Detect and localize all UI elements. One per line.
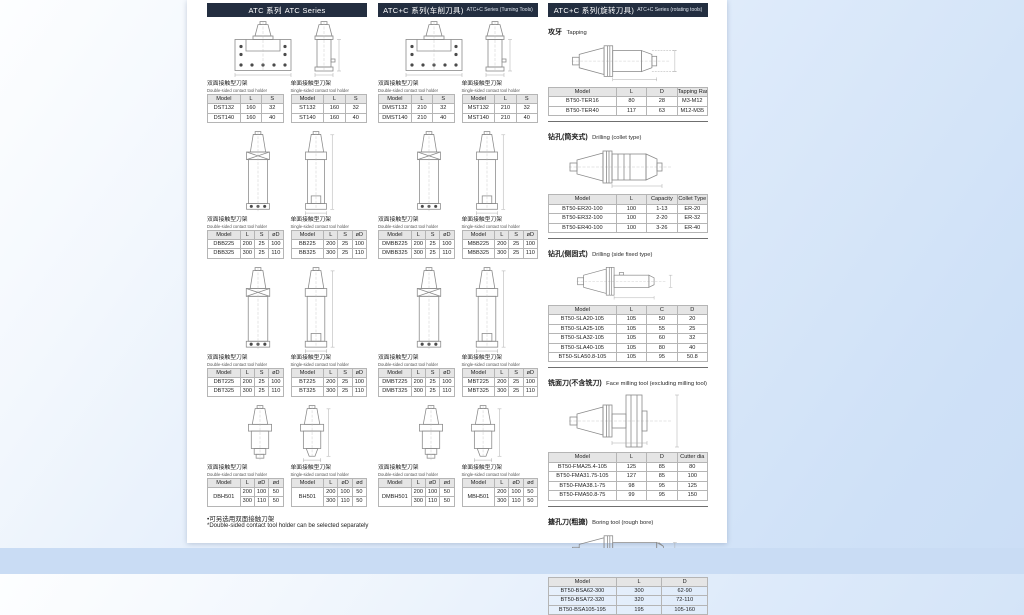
col-header: L bbox=[411, 478, 425, 487]
col-header: Model bbox=[549, 453, 617, 462]
col-header: S bbox=[262, 94, 283, 103]
table-label-en: Double-sided contact tool holder bbox=[207, 362, 284, 367]
cell: 80 bbox=[647, 343, 677, 352]
section-title-en: Drilling (side fixed type) bbox=[592, 252, 652, 258]
table-row: MBH50120010050 bbox=[462, 487, 538, 496]
double-sided-block: 双面接触型刀架 Double-sided contact tool holder… bbox=[378, 355, 455, 397]
col-header: L bbox=[240, 368, 254, 377]
table-pair: 双面接触型刀架 Double-sided contact tool holder… bbox=[207, 355, 367, 397]
section-divider bbox=[548, 121, 708, 122]
col-header: L bbox=[616, 453, 646, 462]
col-header: D bbox=[662, 577, 708, 586]
table-row: DMBT22520025100 bbox=[379, 378, 455, 387]
cell: 60 bbox=[647, 334, 677, 343]
col-header: S bbox=[516, 94, 537, 103]
drawings-row bbox=[548, 41, 708, 85]
drawings-row bbox=[548, 146, 708, 192]
cell: BT50-ER20-100 bbox=[549, 204, 617, 213]
cell: 110 bbox=[523, 387, 537, 396]
cell: 200 bbox=[495, 240, 509, 249]
col-header: S bbox=[509, 230, 523, 239]
header-row: ModelLSøD bbox=[379, 230, 455, 239]
cell: BT50-FMA38.1-75 bbox=[549, 481, 617, 490]
drilling-collet-tool-drawing bbox=[565, 146, 691, 192]
cell: 160 bbox=[240, 113, 261, 122]
single-sided-block: 单面接触型刀架 Single-sided contact tool holder… bbox=[291, 465, 368, 507]
spec-table: ModelLSøDBB22520025100BB32530025110 bbox=[291, 230, 368, 259]
table-pair: 双面接触型刀架 Double-sided contact tool holder… bbox=[378, 465, 538, 507]
col-header: L bbox=[495, 230, 509, 239]
col-header: L bbox=[411, 230, 425, 239]
table-row: DBT32530025110 bbox=[208, 387, 284, 396]
tool-holder-side-drawing bbox=[465, 267, 509, 353]
cell: 2-20 bbox=[647, 214, 677, 223]
col-header: L bbox=[324, 230, 338, 239]
cell: 110 bbox=[440, 249, 454, 258]
section-divider bbox=[548, 367, 708, 368]
table-row: BH50120010050 bbox=[291, 487, 367, 496]
cell: 300 bbox=[240, 497, 254, 506]
col-header: Model bbox=[462, 230, 495, 239]
col-header: L bbox=[411, 94, 432, 103]
drawings-row bbox=[378, 405, 538, 463]
cell: 50 bbox=[523, 487, 537, 496]
cell: ER-20 bbox=[677, 204, 707, 213]
drawings-row bbox=[378, 21, 538, 79]
table-label-cn: 双面接触型刀架 bbox=[378, 465, 455, 472]
cell: DMST140 bbox=[379, 113, 412, 122]
single-sided-block: 单面接触型刀架 Single-sided contact tool holder… bbox=[291, 217, 368, 259]
cell: BT50-BSA105-195 bbox=[549, 605, 617, 614]
cell: 200 bbox=[324, 378, 338, 387]
col-header: ød bbox=[440, 478, 454, 487]
table-row: MST13221032 bbox=[462, 104, 538, 113]
cell: BB325 bbox=[291, 249, 324, 258]
drawings-row bbox=[378, 267, 538, 353]
cell: MBH501 bbox=[462, 487, 495, 506]
cell: 210 bbox=[411, 113, 432, 122]
column-atc-series: ATC 系列 ATC Series 双面接触型刀架 Double-sided c… bbox=[207, 3, 367, 529]
col-header: L bbox=[240, 230, 254, 239]
table-label-en: Double-sided contact tool holder bbox=[378, 224, 455, 229]
header-row: ModelLCD bbox=[549, 305, 708, 314]
header-title-en: ATC+C Series (rotating tools) bbox=[637, 7, 702, 13]
cell: 80 bbox=[616, 97, 646, 106]
table-row: ST14016040 bbox=[291, 113, 367, 122]
cell: 117 bbox=[616, 106, 646, 115]
col-header: Model bbox=[379, 230, 412, 239]
cell: 50 bbox=[269, 487, 283, 496]
cell: 200 bbox=[411, 240, 425, 249]
table-row: MBT22520025100 bbox=[462, 378, 538, 387]
col-header: Capacity bbox=[647, 195, 677, 204]
cell: 125 bbox=[616, 462, 646, 471]
cell: 105 bbox=[616, 334, 646, 343]
cell: BB225 bbox=[291, 240, 324, 249]
header-row: ModelLøDød bbox=[291, 478, 367, 487]
table-label-en: Single-sided contact tool holder bbox=[291, 472, 368, 477]
cell: 100 bbox=[677, 472, 707, 481]
col-header: øD bbox=[269, 368, 283, 377]
table-row: BT50-ER40-1001003-26ER-40 bbox=[549, 223, 708, 232]
cell: 200 bbox=[240, 378, 254, 387]
table-row: BT50-ER20-1001001-13ER-20 bbox=[549, 204, 708, 213]
cell: 100 bbox=[616, 223, 646, 232]
cell: 200 bbox=[411, 487, 425, 496]
table-row: BB22520025100 bbox=[291, 240, 367, 249]
table-row: BT50-BSA62-30030062-90 bbox=[549, 587, 708, 596]
section-title-face-milling: 铣面刀(不含铣刀) Face milling tool (excluding m… bbox=[548, 372, 708, 390]
col-header: D bbox=[647, 453, 677, 462]
cell: 200 bbox=[324, 487, 338, 496]
cell: 25 bbox=[338, 249, 352, 258]
col-header: S bbox=[254, 368, 268, 377]
table-label-en: Single-sided contact tool holder bbox=[291, 88, 368, 93]
col-header: øD bbox=[352, 230, 366, 239]
col-header: Model bbox=[208, 230, 241, 239]
col-header: ød bbox=[269, 478, 283, 487]
tapping-tool-drawing bbox=[565, 41, 691, 85]
header-row: ModelLøDød bbox=[208, 478, 284, 487]
cell: BH501 bbox=[291, 487, 324, 506]
cell: ST140 bbox=[291, 113, 324, 122]
cell: 300 bbox=[324, 497, 338, 506]
cell: 32 bbox=[516, 104, 537, 113]
table-label-en: Single-sided contact tool holder bbox=[462, 362, 539, 367]
table-row: DMBT32530025110 bbox=[379, 387, 455, 396]
header-row: ModelLS bbox=[291, 94, 367, 103]
spec-table: ModelLøDødDBH5012001005030011050 bbox=[207, 478, 284, 507]
table-row: DMST13221032 bbox=[379, 104, 455, 113]
header-row: ModelLS bbox=[379, 94, 455, 103]
cell: 195 bbox=[616, 605, 662, 614]
table-label-en: Single-sided contact tool holder bbox=[291, 224, 368, 229]
cell: 40 bbox=[345, 113, 366, 122]
spec-table: ModelLSDMST13221032DMST14021040 bbox=[378, 94, 455, 123]
tool-holder-side-drawing bbox=[294, 131, 338, 215]
header-row: ModelLSøD bbox=[291, 368, 367, 377]
tool-holder-side-drawing bbox=[294, 405, 334, 463]
cell: 200 bbox=[495, 378, 509, 387]
cell: MBB325 bbox=[462, 249, 495, 258]
cell: 25 bbox=[425, 378, 439, 387]
col-header: ød bbox=[523, 478, 537, 487]
spec-table: ModelLSøDBT22520025100BT32530025110 bbox=[291, 368, 368, 397]
header-row: ModelLSøD bbox=[379, 368, 455, 377]
cell: 25 bbox=[677, 324, 707, 333]
section-header-atc: ATC 系列 ATC Series bbox=[207, 3, 367, 17]
spec-table: ModelLSøDDMBB22520025100DMBB32530025110 bbox=[378, 230, 455, 259]
cell: 160 bbox=[240, 104, 261, 113]
col-header: C bbox=[647, 305, 677, 314]
spec-table: ModelLSøDDBB22520025100DBB32530025110 bbox=[207, 230, 284, 259]
table-row: DMBB32530025110 bbox=[379, 249, 455, 258]
table-row: MBB32530025110 bbox=[462, 249, 538, 258]
cell: DMBT325 bbox=[379, 387, 412, 396]
header-row: ModelLDTapping Range bbox=[549, 88, 708, 97]
col-header: ød bbox=[352, 478, 366, 487]
cell: 50 bbox=[352, 497, 366, 506]
cell: 100 bbox=[440, 378, 454, 387]
cell: MST140 bbox=[462, 113, 495, 122]
drawings-row bbox=[548, 263, 708, 303]
table-row: BT50-FMA25.4-1051258580 bbox=[549, 462, 708, 471]
col-header: øD bbox=[269, 230, 283, 239]
cell: 105 bbox=[616, 343, 646, 352]
cell: 300 bbox=[495, 387, 509, 396]
cell: DBT325 bbox=[208, 387, 241, 396]
table-row: BT50-TER4011763M12-M35 bbox=[549, 106, 708, 115]
drawings-row bbox=[207, 267, 367, 353]
cell: 110 bbox=[338, 497, 352, 506]
cell: 320 bbox=[616, 596, 662, 605]
cell: 105 bbox=[616, 315, 646, 324]
section-title-cn: 搪孔刀(粗搪) bbox=[548, 519, 588, 526]
cell: DBB225 bbox=[208, 240, 241, 249]
cell: 200 bbox=[495, 487, 509, 496]
cell: 25 bbox=[509, 249, 523, 258]
section-divider bbox=[548, 506, 708, 507]
col-header: Model bbox=[549, 305, 617, 314]
col-header: Model bbox=[379, 94, 412, 103]
spec-table: ModelLCDBT50-SLA20-1051055020BT50-SLA25-… bbox=[548, 305, 708, 363]
cell: 25 bbox=[254, 240, 268, 249]
col-header: Model bbox=[379, 478, 412, 487]
cell: 300 bbox=[411, 497, 425, 506]
cell: DMBT225 bbox=[379, 378, 412, 387]
col-header: S bbox=[509, 368, 523, 377]
cell: 125 bbox=[677, 481, 707, 490]
section-title-drilling-collet: 钻孔(筒夹式) Drilling (collet type) bbox=[548, 126, 708, 144]
table-pair: 双面接触型刀架 Double-sided contact tool holder… bbox=[207, 81, 367, 123]
cell: 300 bbox=[324, 387, 338, 396]
section-title-cn: 钻孔(侧固式) bbox=[548, 251, 588, 258]
table-pair: 双面接触型刀架 Double-sided contact tool holder… bbox=[207, 465, 367, 507]
header-title-cn: ATC+C 系列(车削刀具) bbox=[383, 5, 464, 16]
cell: 200 bbox=[411, 378, 425, 387]
tool-holder-front-drawing bbox=[236, 267, 280, 353]
cell: 300 bbox=[495, 497, 509, 506]
tool-holder-front-drawing bbox=[407, 131, 451, 215]
spec-table: ModelLøDødMBH5012001005030011050 bbox=[462, 478, 539, 507]
col-header: S bbox=[254, 230, 268, 239]
table-row: DBH50120010050 bbox=[208, 487, 284, 496]
col-header: L bbox=[495, 478, 509, 487]
drawings-row bbox=[548, 392, 708, 450]
header-row: ModelLSøD bbox=[208, 368, 284, 377]
catalog-page: ATC 系列 ATC Series 双面接触型刀架 Double-sided c… bbox=[187, 0, 727, 543]
spec-table: ModelLSøDMBT22520025100MBT32530025110 bbox=[462, 368, 539, 397]
table-row: BT50-TER168028M3-M12 bbox=[549, 97, 708, 106]
cell: BT50-SLA20-105 bbox=[549, 315, 617, 324]
tool-holder-front-drawing bbox=[401, 21, 467, 79]
cell: BT50-TER40 bbox=[549, 106, 617, 115]
cell: 50 bbox=[440, 487, 454, 496]
table-row: DBB22520025100 bbox=[208, 240, 284, 249]
table-label-en: Single-sided contact tool holder bbox=[462, 472, 539, 477]
cell: 99 bbox=[616, 491, 646, 500]
tool-holder-side-drawing bbox=[481, 21, 515, 79]
tool-holder-front-drawing bbox=[240, 405, 280, 463]
cell: BT50-ER32-100 bbox=[549, 214, 617, 223]
cell: 200 bbox=[240, 240, 254, 249]
drilling-sidefixed-tool-drawing bbox=[569, 263, 687, 303]
col-header: Model bbox=[462, 368, 495, 377]
table-label-en: Single-sided contact tool holder bbox=[462, 88, 539, 93]
cell: 25 bbox=[509, 387, 523, 396]
col-header: Model bbox=[549, 577, 617, 586]
table-row: BT50-SLA50.8-1051059550.8 bbox=[549, 353, 708, 362]
cell: 85 bbox=[647, 472, 677, 481]
table-row: BB32530025110 bbox=[291, 249, 367, 258]
cell: 110 bbox=[523, 249, 537, 258]
table-pair: 双面接触型刀架 Double-sided contact tool holder… bbox=[378, 355, 538, 397]
table-row: BT50-BSA72-32032072-110 bbox=[549, 596, 708, 605]
cell: 110 bbox=[254, 497, 268, 506]
cell: 85 bbox=[647, 462, 677, 471]
cell: DMBB325 bbox=[379, 249, 412, 258]
section-title-boring: 搪孔刀(粗搪) Boring tool (rough bore) bbox=[548, 511, 708, 529]
cell: 200 bbox=[240, 487, 254, 496]
col-header: S bbox=[425, 368, 439, 377]
cell: 25 bbox=[338, 240, 352, 249]
cell: MST132 bbox=[462, 104, 495, 113]
spec-table: ModelLSDST13216032DST14016040 bbox=[207, 94, 284, 123]
cell: DMBB225 bbox=[379, 240, 412, 249]
col-header: Cutter dia bbox=[677, 453, 707, 462]
col-header: S bbox=[345, 94, 366, 103]
cell: 300 bbox=[324, 249, 338, 258]
cell: 110 bbox=[352, 249, 366, 258]
face-milling-tool-drawing bbox=[565, 392, 691, 450]
section-title-en: Drilling (collet type) bbox=[592, 135, 641, 141]
col-header: øD bbox=[509, 478, 523, 487]
cell: 105-160 bbox=[662, 605, 708, 614]
col-header: Model bbox=[291, 368, 324, 377]
table-label-en: Double-sided contact tool holder bbox=[207, 88, 284, 93]
cell: 100 bbox=[616, 214, 646, 223]
section-header-atc-c-rotating: ATC+C 系列(旋转刀具) ATC+C Series (rotating to… bbox=[548, 3, 708, 17]
cell: 110 bbox=[269, 249, 283, 258]
table-pair: 双面接触型刀架 Double-sided contact tool holder… bbox=[378, 81, 538, 123]
section-title-en: Tapping bbox=[566, 30, 586, 36]
header-row: ModelLSøD bbox=[291, 230, 367, 239]
cell: 50 bbox=[523, 497, 537, 506]
cell: 50.8 bbox=[677, 353, 707, 362]
cell: 100 bbox=[440, 240, 454, 249]
cell: 25 bbox=[425, 240, 439, 249]
spec-table: ModelLDBT50-BSA62-30030062-90BT50-BSA72-… bbox=[548, 577, 708, 615]
cell: BT50-SLA32-105 bbox=[549, 334, 617, 343]
double-sided-block: 双面接触型刀架 Double-sided contact tool holder… bbox=[207, 81, 284, 123]
cell: 95 bbox=[647, 353, 677, 362]
tool-holder-front-drawing bbox=[230, 21, 296, 79]
cell: 40 bbox=[677, 343, 707, 352]
section-title-cn: 攻牙 bbox=[548, 29, 562, 36]
table-label-cn: 单面接触型刀架 bbox=[291, 355, 368, 362]
spec-table: ModelLSøDDMBT22520025100DMBT32530025110 bbox=[378, 368, 455, 397]
cell: 50 bbox=[269, 497, 283, 506]
cell: 100 bbox=[523, 378, 537, 387]
cell: 40 bbox=[262, 113, 283, 122]
table-row: BT32530025110 bbox=[291, 387, 367, 396]
col-header: Model bbox=[291, 230, 324, 239]
section-header-atc-c-turning: ATC+C 系列(车削刀具) ATC+C Series (Turning Too… bbox=[378, 3, 538, 17]
cell: 160 bbox=[324, 113, 345, 122]
table-row: BT50-FMA50.8-759995150 bbox=[549, 491, 708, 500]
spec-table: ModelLSMST13221032MST14021040 bbox=[462, 94, 539, 123]
cell: 32 bbox=[262, 104, 283, 113]
cell: 50 bbox=[440, 497, 454, 506]
cell: 72-110 bbox=[662, 596, 708, 605]
table-row: BT50-SLA20-1051055020 bbox=[549, 315, 708, 324]
col-header: L bbox=[411, 368, 425, 377]
col-header: L bbox=[324, 94, 345, 103]
header-row: ModelLS bbox=[208, 94, 284, 103]
cell: 105 bbox=[616, 324, 646, 333]
cell: BT50-FMA31.75-105 bbox=[549, 472, 617, 481]
double-sided-block: 双面接触型刀架 Double-sided contact tool holder… bbox=[207, 465, 284, 507]
header-row: ModelLSøD bbox=[462, 368, 538, 377]
cell: 127 bbox=[616, 472, 646, 481]
table-row: BT50-FMA38.1-759895125 bbox=[549, 481, 708, 490]
cell: MBT325 bbox=[462, 387, 495, 396]
cell: DST132 bbox=[208, 104, 241, 113]
cell: 80 bbox=[677, 462, 707, 471]
col-header: Model bbox=[291, 478, 324, 487]
footnote-en: *Double-sided contact tool holder can be… bbox=[207, 523, 407, 529]
tool-holder-front-drawing bbox=[236, 131, 280, 215]
cell: 25 bbox=[338, 387, 352, 396]
cell: 210 bbox=[495, 104, 516, 113]
section-title-en: Boring tool (rough bore) bbox=[592, 520, 653, 526]
table-pair: 双面接触型刀架 Double-sided contact tool holder… bbox=[207, 217, 367, 259]
table-label-cn: 双面接触型刀架 bbox=[207, 81, 284, 88]
cell: ST132 bbox=[291, 104, 324, 113]
col-header: øD bbox=[440, 230, 454, 239]
col-header: øD bbox=[352, 368, 366, 377]
tool-holder-side-drawing bbox=[465, 405, 505, 463]
table-row: MBB22520025100 bbox=[462, 240, 538, 249]
col-header: S bbox=[433, 94, 454, 103]
col-header: Model bbox=[462, 94, 495, 103]
table-row: BT50-SLA25-1051055525 bbox=[549, 324, 708, 333]
cell: 25 bbox=[425, 387, 439, 396]
single-sided-block: 单面接触型刀架 Single-sided contact tool holder… bbox=[462, 465, 539, 507]
cell: 55 bbox=[647, 324, 677, 333]
col-header: D bbox=[677, 305, 707, 314]
table-label-cn: 双面接触型刀架 bbox=[378, 355, 455, 362]
cell: 32 bbox=[345, 104, 366, 113]
col-header: L bbox=[616, 88, 646, 97]
cell: 25 bbox=[509, 240, 523, 249]
cell: 160 bbox=[324, 104, 345, 113]
cell: 25 bbox=[254, 387, 268, 396]
cell: 100 bbox=[269, 240, 283, 249]
header-row: ModelLS bbox=[462, 94, 538, 103]
cell: 300 bbox=[616, 587, 662, 596]
tool-holder-front-drawing bbox=[411, 405, 451, 463]
table-row: DBB32530025110 bbox=[208, 249, 284, 258]
col-header: D bbox=[647, 88, 677, 97]
cell: BT325 bbox=[291, 387, 324, 396]
spec-table: ModelLDCutter diaBT50-FMA25.4-1051258580… bbox=[548, 452, 708, 500]
cell: MBT225 bbox=[462, 378, 495, 387]
table-pair: 双面接触型刀架 Double-sided contact tool holder… bbox=[378, 217, 538, 259]
table-row: MST14021040 bbox=[462, 113, 538, 122]
cell: 300 bbox=[240, 249, 254, 258]
drawings-row bbox=[207, 21, 367, 79]
